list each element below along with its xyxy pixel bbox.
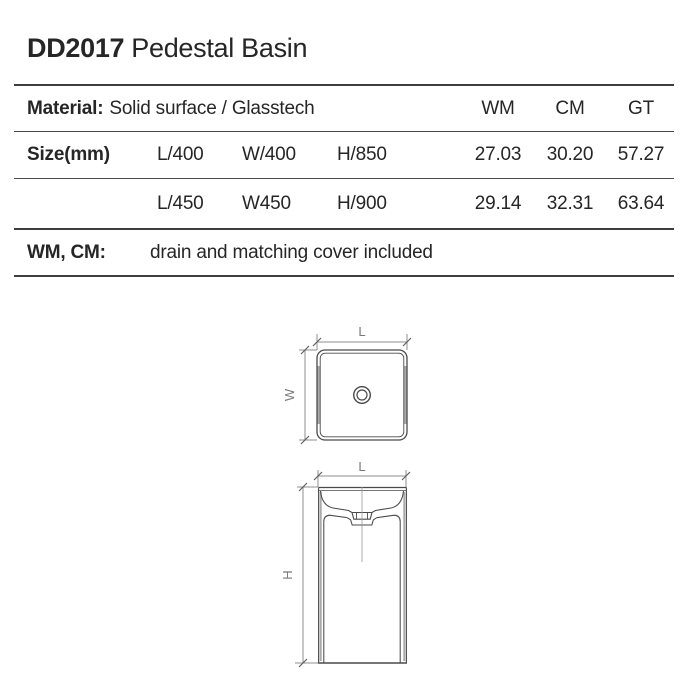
top-view-drain-inner <box>357 390 367 400</box>
top-view-edge-shading <box>319 366 406 424</box>
top-view-inner-rim <box>320 353 404 437</box>
technical-drawings: L W L H <box>0 0 700 700</box>
front-view-l-dimension-label: L <box>358 459 365 474</box>
top-view-drawing: L W <box>282 324 411 444</box>
top-view-outer-rim <box>317 350 407 440</box>
top-view-w-dimension-label: W <box>282 388 297 401</box>
spec-sheet-page: DD2017Pedestal Basin Material: Solid sur… <box>0 0 700 700</box>
top-view-l-dimension-label: L <box>358 324 365 339</box>
top-view-w-dimension-line <box>299 350 317 440</box>
front-view-h-dimension-line <box>295 487 318 663</box>
front-view-edge-shading <box>321 492 405 661</box>
front-view-drawing: L H <box>280 459 410 667</box>
top-view-drain-outer <box>354 387 371 404</box>
front-view-sides <box>319 488 407 664</box>
front-view-h-dimension-label: H <box>280 570 295 579</box>
